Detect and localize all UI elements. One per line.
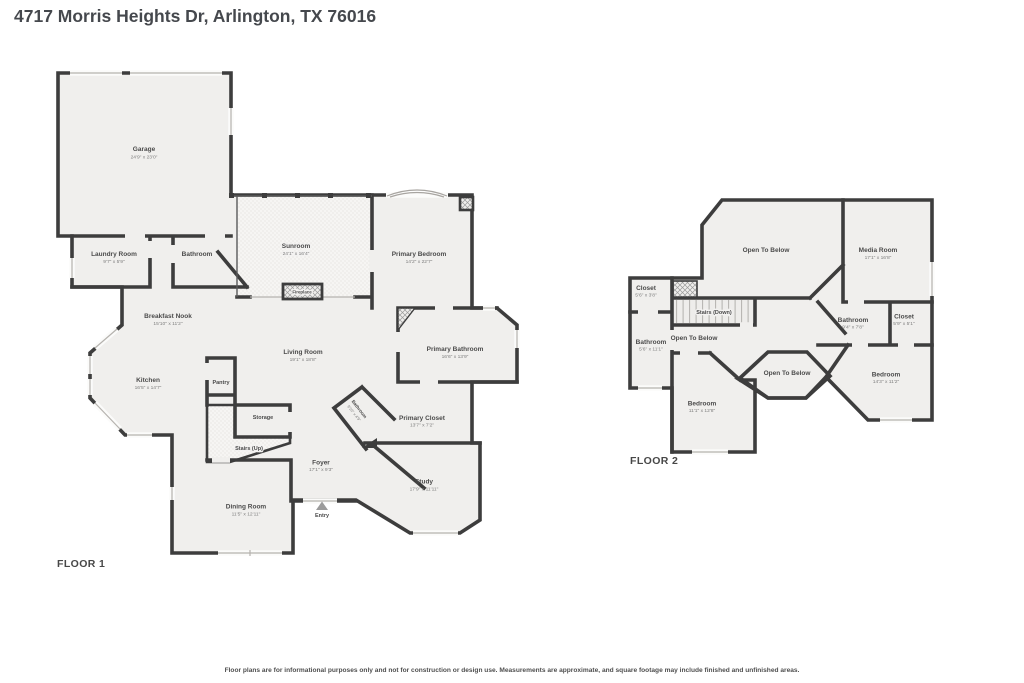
page-title: 4717 Morris Heights Dr, Arlington, TX 76…: [14, 6, 376, 26]
room-label-bathroom-left: Bathroom: [636, 339, 667, 346]
room-label-garage: Garage: [133, 146, 156, 153]
room-dims-primary-bathroom: 16'6" x 13'9": [442, 354, 469, 360]
room-label-bathroom: Bathroom: [182, 251, 213, 258]
room-dims-dining-room: 11'5" x 12'11": [232, 512, 261, 518]
floor1-plan: Garage 24'9" x 23'0" Laundry Room 9'7" x…: [57, 73, 517, 570]
room-label-storage: Storage: [253, 415, 273, 421]
column-box: [460, 197, 473, 210]
stairwell-hatch: [673, 281, 697, 298]
room-label-sunroom: Sunroom: [282, 243, 311, 250]
room-label-stairs-down: Stairs (Down): [696, 310, 732, 316]
room-label-laundry: Laundry Room: [91, 251, 137, 258]
room-label-primary-closet: Primary Closet: [399, 415, 446, 422]
room-label-closet-left: Closet: [636, 285, 657, 292]
room-dims-bathroom-left: 5'6" x 11'1": [639, 347, 663, 353]
disclaimer: Floor plans are for informational purpos…: [225, 667, 800, 674]
room-label-breakfast-nook: Breakfast Nook: [144, 313, 192, 320]
room-dims-bedroom-left: 11'1" x 12'8": [689, 408, 716, 414]
room-label-primary-bedroom: Primary Bedroom: [392, 251, 447, 258]
room-label-media-room: Media Room: [859, 247, 898, 254]
room-label-foyer: Foyer: [312, 460, 330, 467]
room-dims-media-room: 17'1" x 16'8": [865, 255, 892, 261]
room-dims-living-room: 19'1" x 18'8": [290, 357, 317, 363]
room-label-living-room: Living Room: [283, 349, 323, 356]
room-dims-kitchen: 16'5" x 14'7": [135, 385, 162, 391]
room-label-open-below-3: Open To Below: [764, 370, 812, 377]
room-label-study: Study: [415, 479, 433, 486]
room-label-open-below-2: Open To Below: [671, 335, 719, 342]
room-label-fireplace: Fireplace: [292, 290, 312, 295]
room-dims-breakfast-nook: 15'10" x 11'2": [153, 321, 182, 327]
room-label-stairs-up: Stairs (Up): [235, 446, 263, 452]
room-label-kitchen: Kitchen: [136, 377, 160, 384]
room-label-entry: Entry: [315, 513, 330, 519]
room-dims-primary-closet: 13'7" x 7'2": [410, 423, 434, 429]
floor1-footprint: [58, 73, 517, 553]
room-dims-sunroom: 24'1" x 16'4": [283, 251, 310, 257]
room-label-open-below-1: Open To Below: [743, 247, 791, 254]
floor1-label: FLOOR 1: [57, 558, 105, 570]
room-label-bedroom-left: Bedroom: [688, 401, 717, 408]
floor2-label: FLOOR 2: [630, 455, 678, 467]
room-dims-study: 17'9" x 11'11": [410, 487, 439, 493]
room-dims-foyer: 17'1" x 9'3": [309, 467, 333, 473]
room-dims-closet-right: 5'9" x 5'1": [893, 321, 915, 327]
room-label-primary-bathroom: Primary Bathroom: [427, 346, 484, 353]
room-label-pantry: Pantry: [212, 380, 230, 386]
room-label-closet-right: Closet: [894, 314, 915, 321]
floorplan-image: 4717 Morris Heights Dr, Arlington, TX 76…: [0, 0, 1024, 683]
room-dims-bedroom-right: 14'3" x 11'2": [873, 379, 900, 385]
room-dims-bathroom-right: 9'4" x 7'8": [842, 325, 864, 331]
room-label-bedroom-right: Bedroom: [872, 372, 901, 379]
room-dims-laundry: 9'7" x 5'9": [103, 259, 125, 265]
room-label-bathroom-right: Bathroom: [838, 317, 869, 324]
room-label-dining-room: Dining Room: [226, 504, 267, 511]
floor2-plan: Open To Below Media Room 17'1" x 16'8" C…: [630, 200, 932, 467]
room-dims-primary-bedroom: 14'2" x 22'7": [406, 259, 433, 265]
room-dims-closet-left: 5'6" x 3'8": [635, 293, 657, 299]
room-dims-garage: 24'9" x 23'0": [131, 155, 158, 161]
